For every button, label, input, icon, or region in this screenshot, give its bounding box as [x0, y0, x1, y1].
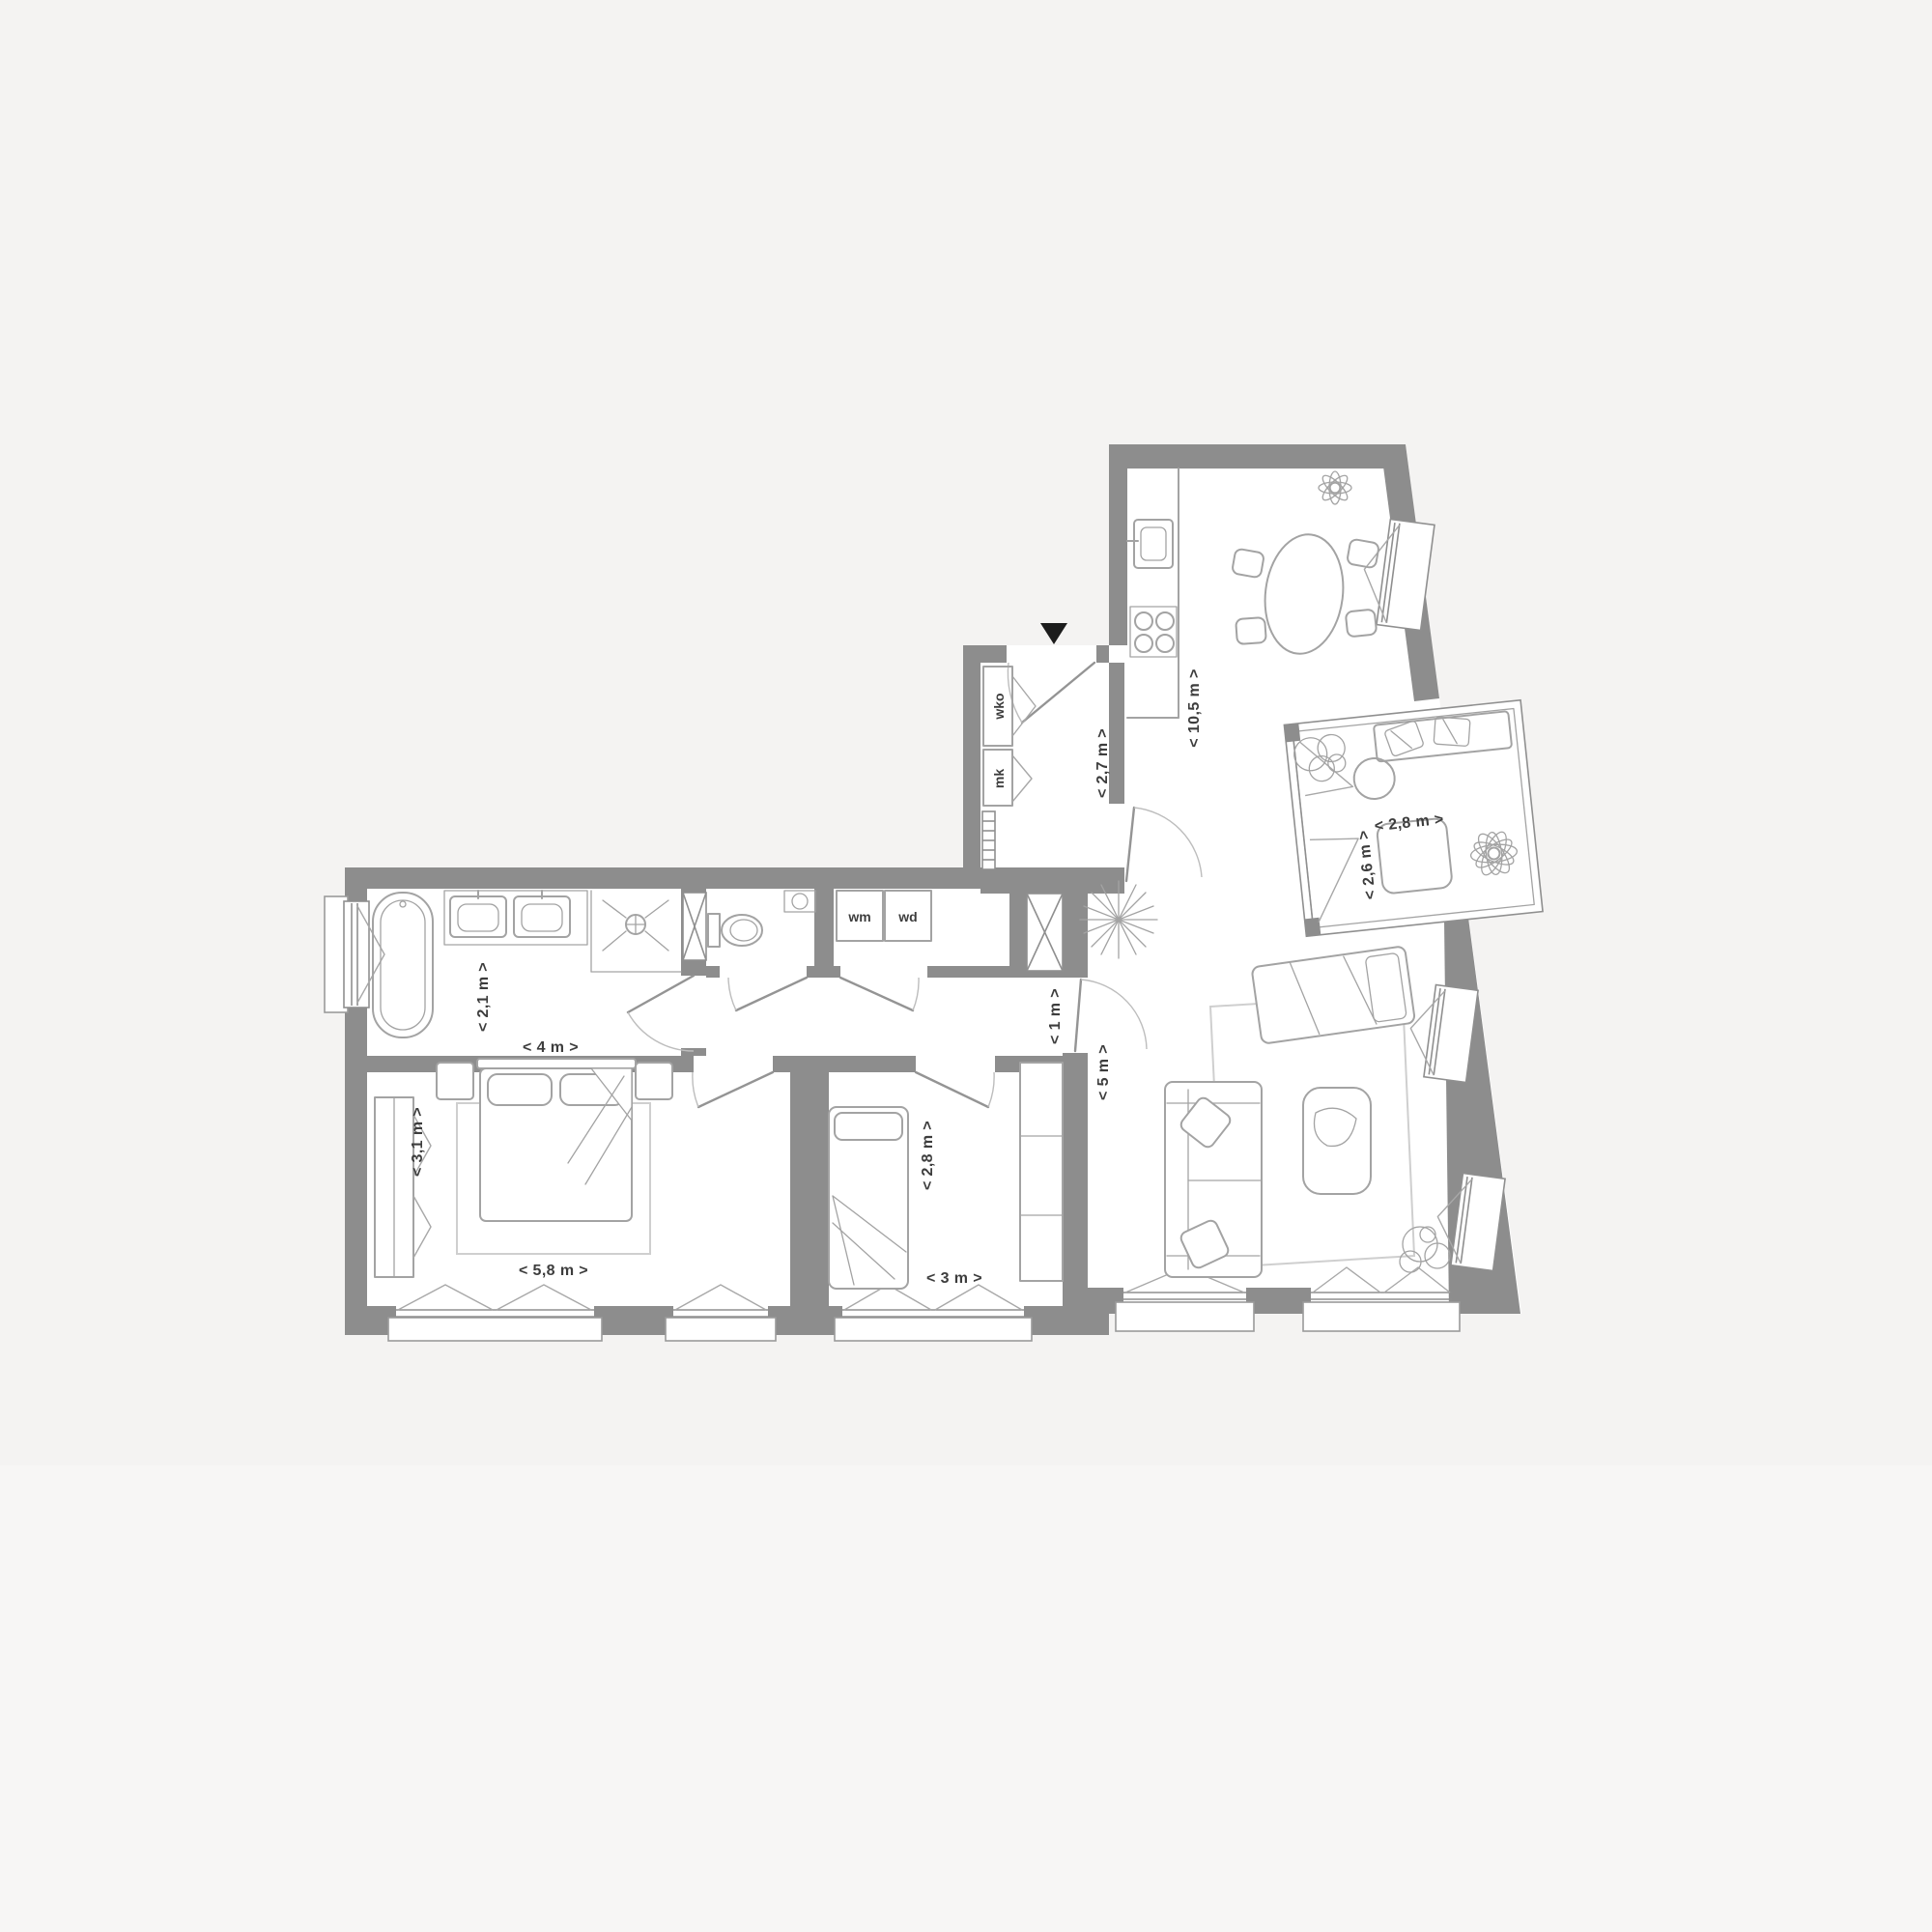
nightstand-left [437, 1063, 473, 1099]
closet-mk-label: mk [991, 769, 1007, 788]
bedroom1-width-label: < 5,8 m > [519, 1263, 588, 1279]
floor-plan-canvas: < 2,8 m > < 2,6 m > [0, 0, 1932, 1932]
washer-label: wm [847, 909, 870, 924]
bedroom2-depth-label: < 2,8 m > [920, 1121, 936, 1190]
bathroom-width-label: < 4 m > [523, 1039, 579, 1056]
bedroom2-width-label: < 3 m > [926, 1270, 982, 1287]
corridor-plant-icon [1080, 881, 1157, 958]
hall-radiator-icon [982, 811, 995, 869]
double-bed [477, 1059, 636, 1221]
kitchen-living-length-label: < 10,5 m > [1186, 668, 1203, 747]
sofa [1165, 1082, 1262, 1277]
closet-wko-label: wko [991, 693, 1007, 720]
corridor-width-label: < 1 m > [1047, 988, 1064, 1044]
nightstand-right [636, 1063, 672, 1099]
bottom-light-band [0, 1465, 1932, 1932]
hall-depth-label: < 2,7 m > [1094, 728, 1111, 798]
balcony: < 2,8 m > < 2,6 m > [1284, 700, 1543, 937]
bathroom-depth-label: < 2,1 m > [475, 962, 492, 1032]
bedroom1-depth-label: < 3,1 m > [410, 1107, 426, 1177]
living-width-label: < 5 m > [1095, 1044, 1112, 1100]
single-bed [829, 1107, 908, 1289]
bedroom2-wardrobe [1020, 1063, 1063, 1281]
dryer-label: wd [897, 909, 917, 924]
